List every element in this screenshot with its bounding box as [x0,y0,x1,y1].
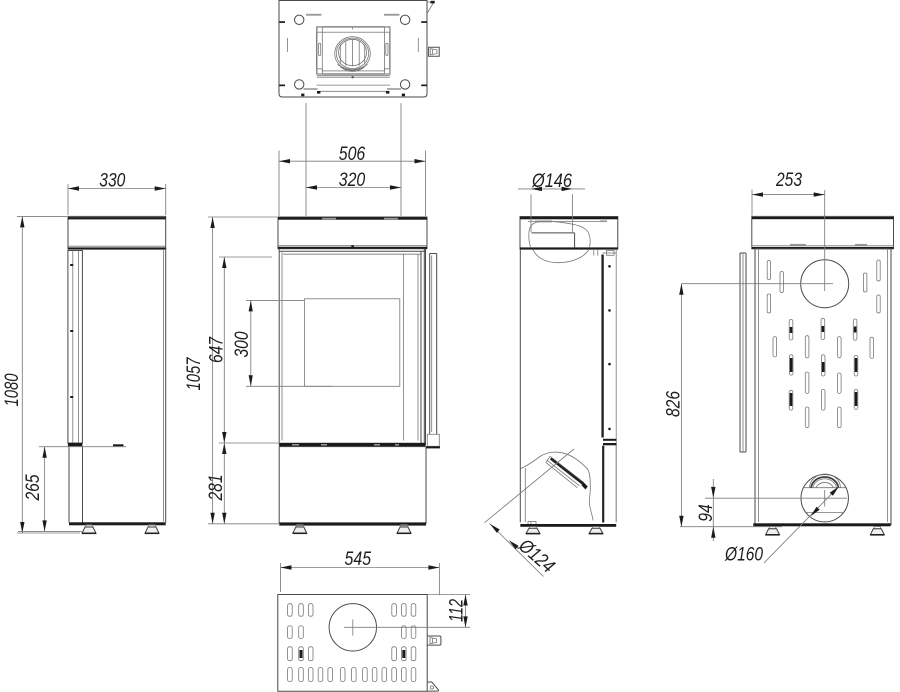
svg-text:112: 112 [445,599,467,622]
svg-text:1080: 1080 [1,373,23,406]
svg-text:Ø160: Ø160 [724,544,763,566]
svg-text:94: 94 [695,504,717,522]
svg-text:Ø124: Ø124 [514,534,559,577]
svg-text:647: 647 [205,336,227,363]
svg-text:506: 506 [339,143,366,165]
svg-text:545: 545 [345,548,372,570]
svg-text:330: 330 [99,170,125,192]
svg-text:281: 281 [205,475,227,502]
svg-text:265: 265 [22,474,44,501]
svg-text:300: 300 [231,331,253,357]
svg-text:253: 253 [775,169,802,191]
svg-text:320: 320 [339,169,366,191]
svg-text:Ø146: Ø146 [531,170,572,192]
svg-text:826: 826 [663,391,685,417]
svg-text:1057: 1057 [183,357,205,391]
